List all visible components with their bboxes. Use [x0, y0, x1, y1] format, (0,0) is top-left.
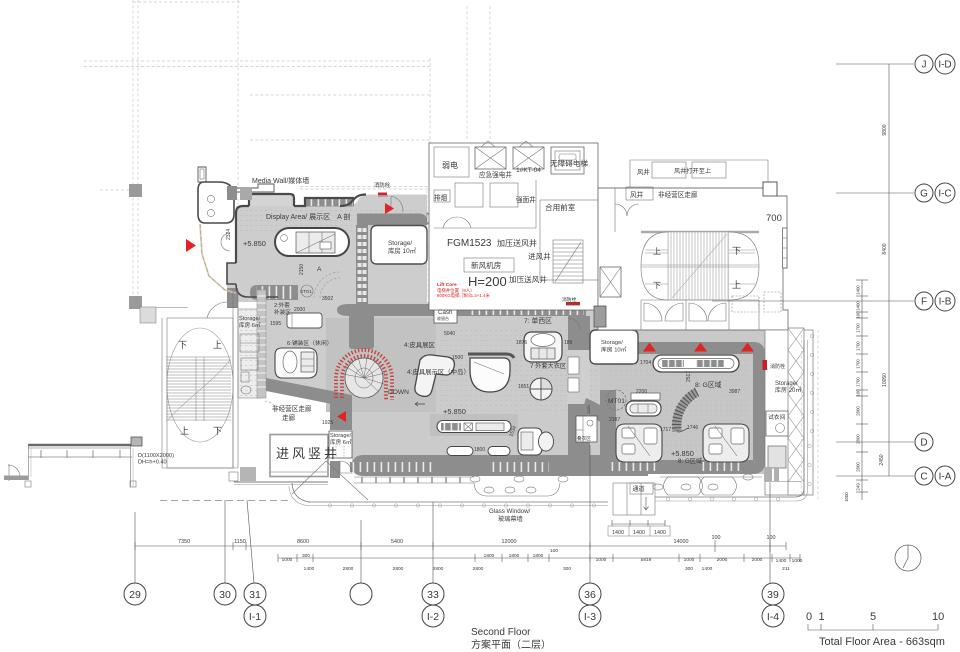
svg-text:2324: 2324 [226, 229, 232, 240]
svg-text:1800: 1800 [474, 447, 485, 453]
svg-text:2:外套: 2:外套 [274, 301, 290, 309]
svg-text:D: D [920, 438, 927, 449]
svg-text:189: 189 [564, 340, 573, 346]
svg-text:39: 39 [767, 589, 779, 601]
svg-text:MT01: MT01 [608, 398, 625, 405]
svg-text:100: 100 [856, 311, 861, 319]
svg-text:1400: 1400 [612, 530, 624, 536]
svg-text:3502: 3502 [322, 296, 333, 302]
svg-text:叠衣区: 叠衣区 [577, 435, 591, 442]
svg-text:Storage/: Storage/ [330, 433, 352, 439]
svg-text:2187: 2187 [609, 417, 620, 423]
svg-text:Glass Window/: Glass Window/ [489, 508, 531, 515]
svg-text:1746: 1746 [687, 425, 698, 431]
svg-text:100: 100 [712, 535, 721, 541]
svg-text:1400: 1400 [654, 530, 666, 536]
svg-text:玻璃幕墙: 玻璃幕墙 [498, 515, 523, 523]
svg-text:Total Floor Area - 663sqm: Total Floor Area - 663sqm [819, 636, 945, 648]
svg-text:29: 29 [129, 589, 141, 601]
svg-text:库房 6㎡: 库房 6㎡ [330, 438, 352, 446]
svg-text:2800: 2800 [473, 566, 484, 572]
svg-text:1700: 1700 [856, 323, 861, 333]
svg-text:+5.850: +5.850 [443, 407, 466, 416]
svg-text:Storage/: Storage/ [601, 340, 623, 346]
svg-text:7: 单西区: 7: 单西区 [524, 316, 552, 325]
svg-text:8600: 8600 [297, 539, 309, 545]
svg-text:300: 300 [563, 566, 571, 572]
svg-text:1400: 1400 [856, 301, 861, 311]
svg-text:1400: 1400 [856, 285, 861, 295]
svg-text:+5.850: +5.850 [671, 449, 694, 458]
svg-text:211: 211 [782, 566, 790, 572]
svg-text:C: C [920, 472, 927, 483]
svg-text:2800: 2800 [856, 406, 861, 416]
svg-text:新风机房: 新风机房 [471, 260, 501, 270]
svg-text:249: 249 [856, 483, 861, 491]
svg-text:300: 300 [685, 566, 693, 572]
svg-text:下: 下 [213, 426, 222, 436]
svg-text:库房 10㎡: 库房 10㎡ [388, 246, 417, 255]
svg-text:2000: 2000 [717, 557, 728, 563]
svg-text:1400: 1400 [633, 530, 645, 536]
svg-text:补装区: 补装区 [274, 308, 291, 316]
svg-text:J: J [922, 60, 927, 71]
svg-text:库房 20㎡: 库房 20㎡ [775, 386, 801, 394]
svg-text:Media Wall/媒体墙: Media Wall/媒体墙 [252, 176, 309, 185]
svg-text:下: 下 [732, 246, 741, 256]
svg-text:I-4: I-4 [767, 611, 779, 623]
svg-text:加压送风井: 加压送风井 [509, 274, 547, 284]
svg-text:消防栓: 消防栓 [770, 363, 785, 370]
svg-text:风井: 风井 [637, 167, 650, 176]
svg-text:8: G区域: 8: G区域 [678, 457, 702, 465]
svg-text:2800: 2800 [393, 566, 404, 572]
svg-text:I-D: I-D [938, 60, 951, 71]
svg-text:5400: 5400 [391, 539, 403, 545]
svg-text:A: A [317, 266, 322, 273]
svg-text:700: 700 [766, 213, 782, 224]
svg-text:弱电: 弱电 [442, 160, 458, 170]
svg-text:1876: 1876 [516, 340, 527, 346]
svg-text:7350: 7350 [178, 539, 190, 545]
svg-text:上: 上 [213, 340, 222, 350]
svg-text:加压送风井: 加压送风井 [497, 238, 537, 248]
svg-text:1651: 1651 [518, 384, 529, 390]
svg-text:进风井: 进风井 [528, 251, 551, 261]
svg-text:1000: 1000 [684, 557, 695, 563]
svg-text:消防栓: 消防栓 [562, 296, 577, 303]
svg-text:1925: 1925 [322, 420, 333, 426]
svg-text:8400: 8400 [882, 243, 888, 254]
svg-text:5: 5 [870, 611, 876, 623]
svg-text:库房 6㎡: 库房 6㎡ [239, 321, 261, 329]
svg-text:4:皮具展区: 4:皮具展区 [404, 340, 436, 349]
svg-text:10: 10 [932, 611, 944, 623]
svg-text:1: 1 [819, 611, 825, 623]
svg-text:0: 0 [806, 611, 812, 623]
svg-text:7 外套大衣区: 7 外套大衣区 [530, 362, 566, 370]
svg-text:2200: 2200 [636, 389, 647, 395]
svg-text:1100: 1100 [586, 405, 591, 414]
svg-text:D(1100X2000): D(1100X2000) [138, 453, 174, 459]
svg-text:2800: 2800 [343, 566, 354, 572]
svg-text:消防栓: 消防栓 [374, 181, 391, 189]
svg-text:Storage/: Storage/ [775, 381, 798, 387]
svg-text:800KG电梯, 顶间1.2+1.4米: 800KG电梯, 顶间1.2+1.4米 [437, 292, 490, 299]
svg-text:2517: 2517 [686, 371, 692, 382]
svg-text:1400: 1400 [304, 566, 315, 572]
svg-text:FGM1523: FGM1523 [447, 238, 492, 249]
svg-text:I-3: I-3 [584, 611, 596, 623]
svg-text:1000: 1000 [282, 557, 293, 563]
svg-text:2150: 2150 [299, 264, 305, 275]
svg-text:Storage/: Storage/ [239, 316, 261, 322]
svg-text:36: 36 [584, 589, 596, 601]
svg-text:Cash: Cash [438, 309, 453, 316]
svg-text:DH=h+0.40: DH=h+0.40 [138, 460, 167, 466]
svg-text:非经营区走廊: 非经营区走廊 [658, 190, 698, 199]
svg-text:Second Floor: Second Floor [471, 627, 531, 638]
svg-text:1800: 1800 [533, 553, 544, 559]
svg-text:2800: 2800 [856, 462, 861, 472]
svg-text:6:铺装区（休闲）: 6:铺装区（休闲） [287, 339, 332, 347]
svg-text:DOWN: DOWN [388, 389, 409, 396]
svg-text:下: 下 [178, 340, 187, 350]
svg-text:F: F [921, 297, 927, 308]
svg-text:非经营区走廊: 非经营区走廊 [272, 404, 312, 413]
svg-text:+5.850: +5.850 [243, 239, 266, 248]
svg-text:1#KT-04: 1#KT-04 [516, 167, 541, 174]
svg-text:5819: 5819 [641, 557, 652, 563]
svg-text:1595: 1595 [270, 321, 281, 327]
svg-text:收银台: 收银台 [437, 315, 449, 321]
svg-text:31: 31 [249, 589, 261, 601]
svg-text:通道: 通道 [633, 485, 645, 493]
svg-text:100: 100 [550, 548, 558, 554]
svg-text:G: G [920, 189, 928, 200]
svg-text:走廊: 走廊 [282, 413, 296, 422]
svg-text:H=200: H=200 [468, 274, 507, 289]
svg-text:2800: 2800 [856, 434, 861, 444]
svg-text:2800: 2800 [433, 566, 444, 572]
svg-text:下: 下 [653, 281, 661, 290]
svg-text:100: 100 [856, 389, 861, 397]
svg-text:上: 上 [180, 426, 189, 436]
svg-text:33: 33 [427, 589, 439, 601]
svg-text:1800: 1800 [509, 553, 520, 559]
svg-text:无障碍电梯: 无障碍电梯 [550, 158, 588, 168]
svg-text:I-2: I-2 [427, 611, 439, 623]
svg-text:1150: 1150 [234, 539, 246, 545]
svg-text:8: G区域: 8: G区域 [695, 380, 722, 389]
svg-text:I-1: I-1 [249, 611, 261, 623]
svg-text:进风竖井: 进风竖井 [276, 446, 340, 461]
svg-text:300: 300 [302, 553, 310, 559]
svg-text:应急强电井: 应急强电井 [479, 170, 512, 179]
svg-text:1000: 1000 [596, 557, 607, 563]
svg-text:I-B: I-B [939, 297, 952, 308]
svg-text:1400: 1400 [776, 558, 787, 564]
svg-text:Display Area/ 展示区 A 剖: Display Area/ 展示区 A 剖 [266, 212, 350, 221]
svg-text:2450: 2450 [879, 454, 885, 465]
svg-text:排烟: 排烟 [434, 193, 448, 202]
svg-text:1700: 1700 [856, 359, 861, 369]
svg-text:1000: 1000 [844, 492, 849, 502]
svg-text:I-C: I-C [938, 189, 951, 200]
svg-text:2000: 2000 [294, 307, 305, 313]
svg-text:1500: 1500 [452, 355, 463, 361]
svg-text:试衣间: 试衣间 [768, 413, 786, 421]
svg-text:1700: 1700 [856, 377, 861, 387]
svg-text:风井打开至上: 风井打开至上 [674, 167, 711, 175]
svg-text:9800: 9800 [882, 124, 888, 135]
svg-text:3987: 3987 [729, 389, 740, 395]
svg-text:4:皮具展示区（中岛）: 4:皮具展示区（中岛） [407, 367, 470, 376]
svg-text:2000: 2000 [752, 557, 763, 563]
svg-text:风井: 风井 [630, 190, 644, 199]
svg-text:合用前室: 合用前室 [545, 202, 576, 212]
svg-text:库房 10㎡: 库房 10㎡ [601, 346, 627, 354]
svg-text:14000: 14000 [674, 539, 689, 545]
svg-text:1704: 1704 [640, 360, 651, 366]
svg-text:1800: 1800 [484, 553, 495, 559]
svg-text:I-A: I-A [939, 472, 952, 483]
svg-text:1400: 1400 [702, 566, 713, 572]
svg-text:STO1: STO1 [300, 289, 312, 294]
svg-text:1717: 1717 [660, 427, 671, 433]
svg-text:1700: 1700 [856, 341, 861, 351]
svg-text:12000: 12000 [502, 539, 517, 545]
svg-text:Storage/: Storage/ [388, 240, 412, 247]
svg-text:方案平面（二层）: 方案平面（二层） [471, 638, 551, 651]
svg-text:100: 100 [767, 535, 776, 541]
svg-text:30: 30 [219, 589, 231, 601]
svg-text:10050: 10050 [882, 373, 888, 387]
svg-text:强面井: 强面井 [516, 195, 536, 204]
svg-text:上: 上 [732, 280, 741, 290]
svg-text:5040: 5040 [444, 331, 455, 337]
svg-text:1000: 1000 [792, 558, 803, 564]
svg-text:上: 上 [653, 247, 661, 256]
